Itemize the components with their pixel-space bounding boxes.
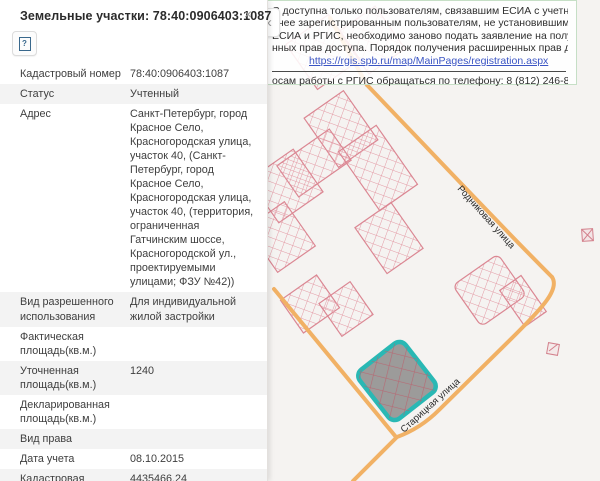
table-row: Декларированная площадь(кв.м.) — [0, 395, 267, 429]
table-row: Кадастровый номер 78:40:0906403:1087 — [0, 64, 267, 84]
row-value — [130, 398, 267, 426]
panel-title: Земельные участки: 78:40:0906403:1087 — [20, 9, 241, 23]
notification-separator — [272, 71, 566, 72]
notification-line: нных прав доступа. Порядок получения рас… — [272, 42, 568, 54]
notification-line: ЕСИА и РГИС, необходимо заново подать за… — [272, 30, 568, 42]
row-label: Вид права — [20, 432, 130, 446]
parcel-info-button[interactable]: ? — [12, 31, 37, 56]
row-label: Фактическая площадь(кв.м.) — [20, 330, 130, 358]
table-row: Вид права — [0, 429, 267, 449]
notification-popup: С доступна только пользователям, связавш… — [260, 0, 577, 85]
row-value: 4435466.24 — [130, 472, 267, 481]
row-label: Декларированная площадь(кв.м.) — [20, 398, 130, 426]
registration-link[interactable]: https://rgis.spb.ru/map/MainPages/regist… — [309, 55, 548, 67]
table-row: Фактическая площадь(кв.м.) — [0, 327, 267, 361]
table-row: Дата учета 08.10.2015 — [0, 449, 267, 469]
row-label: Уточненная площадь(кв.м.) — [20, 364, 130, 392]
parcel-question-icon: ? — [19, 37, 31, 51]
row-value — [130, 432, 267, 446]
close-icon[interactable]: × — [241, 8, 255, 22]
attribute-table: Кадастровый номер 78:40:0906403:1087 Ста… — [0, 64, 267, 481]
notification-line: С доступна только пользователям, связавш… — [272, 5, 568, 17]
table-row: Вид разрешенного использования Для индив… — [0, 292, 267, 326]
app-window: Родниковая улица Старицкая улица С досту… — [0, 0, 600, 481]
row-value: Санкт-Петербург, город Красное Село, Кра… — [130, 107, 267, 289]
row-label: Вид разрешенного использования — [20, 295, 130, 323]
notification-phone-line: осам работы с РГИС обращаться по телефон… — [272, 75, 568, 87]
small-parcel-square — [582, 229, 594, 242]
table-row: Кадастровая стоимость, руб. 4435466.24 — [0, 469, 267, 481]
row-label: Кадастровый номер — [20, 67, 130, 81]
table-row: Адрес Санкт-Петербург, город Красное Сел… — [0, 104, 267, 292]
table-row: Статус Учтенный — [0, 84, 267, 104]
row-value: 1240 — [130, 364, 267, 392]
row-value: Для индивидуальной жилой застройки — [130, 295, 267, 323]
row-value: Учтенный — [130, 87, 267, 101]
parcel-info-panel: Земельные участки: 78:40:0906403:1087 × … — [0, 0, 268, 481]
row-label: Статус — [20, 87, 130, 101]
row-value — [130, 330, 267, 358]
table-row: Уточненная площадь(кв.м.) 1240 — [0, 361, 267, 395]
row-label: Адрес — [20, 107, 130, 289]
row-value: 08.10.2015 — [130, 452, 267, 466]
notification-line: анее зарегистрированным пользователям, н… — [272, 17, 568, 29]
row-value: 78:40:0906403:1087 — [130, 67, 267, 81]
row-label: Кадастровая стоимость, руб. — [20, 472, 130, 481]
small-parcel-diamond — [547, 343, 560, 356]
row-label: Дата учета — [20, 452, 130, 466]
